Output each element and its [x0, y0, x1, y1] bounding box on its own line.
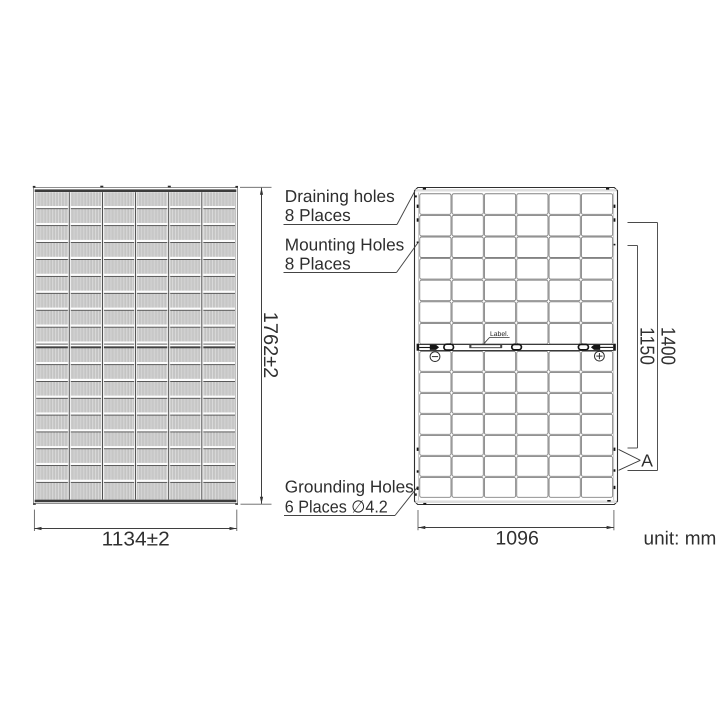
svg-text:unit: mm: unit: mm [644, 528, 717, 549]
svg-text:1096: 1096 [495, 527, 539, 549]
svg-text:Mounting Holes: Mounting Holes [285, 235, 404, 255]
svg-text:Draining holes: Draining holes [285, 186, 395, 206]
svg-text:1150: 1150 [635, 327, 657, 365]
svg-text:1762±2: 1762±2 [259, 312, 281, 379]
svg-text:A: A [641, 451, 653, 471]
svg-text:Label.: Label. [490, 331, 509, 338]
svg-text:1400: 1400 [657, 327, 679, 365]
svg-text:1134±2: 1134±2 [102, 529, 170, 551]
svg-text:Grounding Holes: Grounding Holes [285, 477, 414, 497]
svg-text:8 Places: 8 Places [285, 205, 351, 225]
svg-text:8 Places: 8 Places [285, 253, 351, 273]
svg-text:6 Places ∅4.2: 6 Places ∅4.2 [285, 496, 388, 516]
